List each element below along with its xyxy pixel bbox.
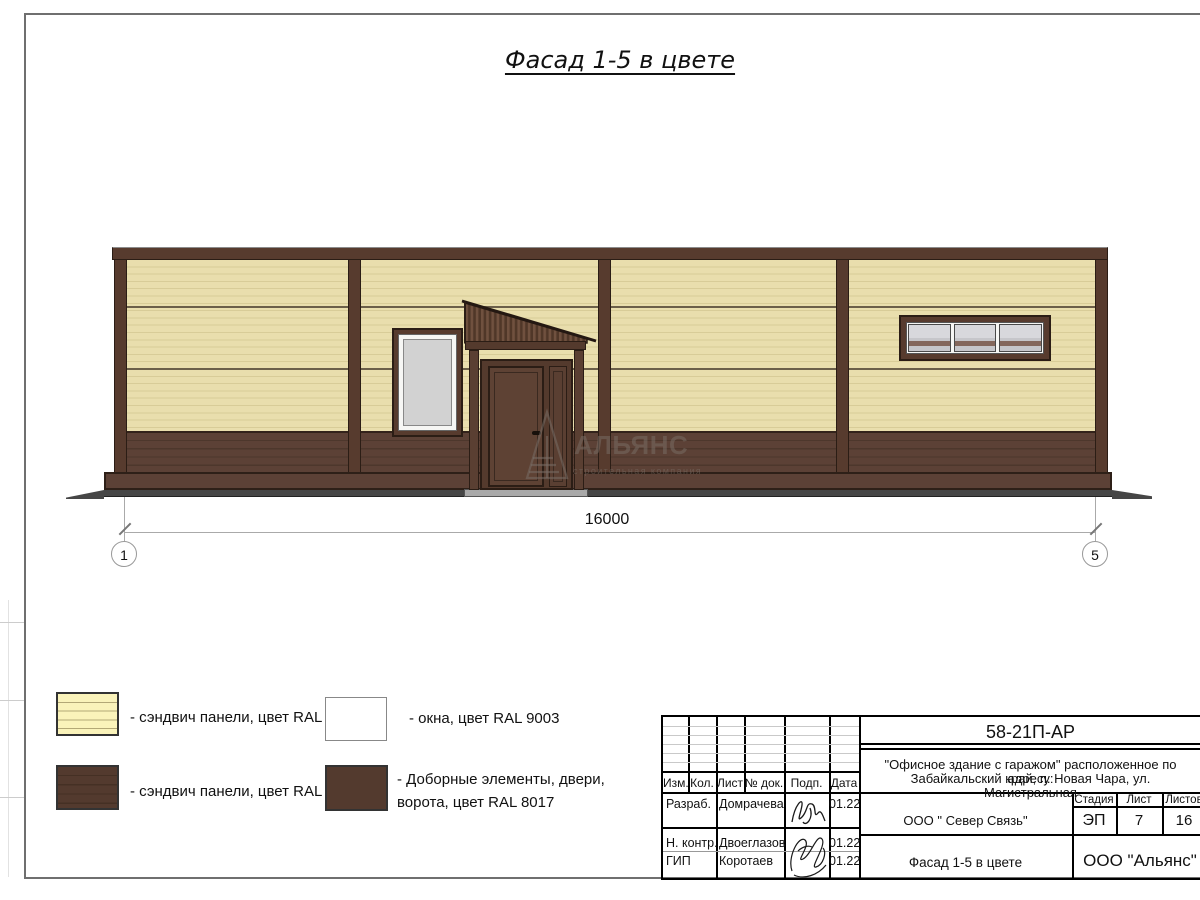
axis-marker-5: 5 [1082, 541, 1108, 567]
tb-name: Двоеглазов [719, 836, 785, 850]
dimension-line [124, 532, 1096, 533]
legend-label-ral8017-doors: - Доборные элементы, двери, ворота, цвет… [397, 768, 632, 814]
tb-sheets-value: 16 [1162, 810, 1200, 832]
tb-drawing-name: Фасад 1-5 в цвете [859, 848, 1072, 878]
tb-line [859, 834, 1200, 836]
dimension-tick [1090, 523, 1103, 536]
tb-col-doc: № док. [744, 775, 784, 791]
legend-label-ral9003-windows: - окна, цвет RAL 9003 [409, 710, 559, 728]
frame-top-line [24, 13, 1200, 15]
facade-roof-band [112, 247, 1108, 260]
tb-company: ООО "Альянс" [1078, 845, 1200, 877]
tb-line [663, 771, 859, 773]
window-single [392, 328, 463, 437]
panel-seam-line [127, 368, 1095, 370]
ground-wedge-right [1112, 490, 1152, 499]
panel-seam-line [127, 306, 1095, 308]
watermark-logo: АЛЬЯНС строительная компания [516, 406, 726, 484]
dimension-value: 16000 [557, 511, 657, 529]
tb-rev-line [663, 726, 859, 727]
sash-band [1000, 341, 1041, 346]
window-glass [403, 339, 452, 426]
axis-marker-1: 1 [111, 541, 137, 567]
tb-col-data: Дата [829, 775, 859, 791]
tb-line [716, 717, 718, 880]
tb-date: 01.22 [829, 797, 859, 811]
sash-band [909, 341, 950, 346]
canopy-beam [465, 341, 586, 350]
tb-project-line2: Забайкальский край, п. Новая Чара, ул. М… [863, 772, 1198, 786]
tb-line [859, 743, 1200, 745]
margin-divider [0, 797, 24, 798]
tb-rev-line [663, 744, 859, 745]
tb-date: 01.22 [829, 836, 859, 850]
tb-name: Коротаев [719, 854, 773, 868]
tb-col-list: Лист [716, 775, 744, 791]
tb-role: Н. контр. [666, 836, 718, 850]
canopy-post-left [469, 350, 479, 490]
legend-swatch-ral1014 [56, 692, 119, 736]
facade-pilaster [1095, 260, 1108, 472]
tb-date: 01.22 [829, 854, 859, 868]
page-title: Фасад 1-5 в цвете [400, 46, 840, 74]
drawing-sheet: Фасад 1-5 в цвете [0, 0, 1200, 900]
tb-line [859, 748, 1200, 750]
window-pane [908, 324, 951, 352]
sash-band [955, 341, 996, 346]
window-triple [899, 315, 1051, 361]
tb-doc-number: 58-21П-АР [859, 721, 1200, 743]
frame-left-line [24, 13, 26, 877]
tb-sheet-value: 7 [1116, 810, 1162, 832]
signature-scribble [784, 827, 830, 880]
tb-rev-line [663, 753, 859, 754]
tb-role: ГИП [666, 854, 691, 868]
legend-swatch-ral8017-panels [56, 765, 119, 810]
margin-divider [0, 700, 24, 701]
tb-col-izm: Изм. [663, 775, 688, 791]
tb-rev-line [663, 735, 859, 736]
tb-rev-line [663, 762, 859, 763]
tb-line [1072, 806, 1200, 808]
window-pane [999, 324, 1042, 352]
watermark-text: АЛЬЯНС [574, 430, 688, 461]
facade-pilaster [348, 260, 361, 472]
margin-divider [0, 622, 24, 623]
tb-sheet-label: Лист [1116, 794, 1162, 806]
extension-line [1095, 497, 1096, 541]
ground-wedge-left [66, 490, 104, 499]
ground-line [104, 490, 1112, 497]
tb-stage-label: Стадия [1072, 794, 1116, 806]
signature-scribble [786, 794, 828, 828]
legend-swatch-ral8017-doors [325, 765, 388, 811]
dimension-tick [119, 523, 132, 536]
window-pane [954, 324, 997, 352]
margin-edge-line [8, 600, 9, 877]
watermark-tagline: строительная компания [573, 466, 702, 476]
facade-pilaster [114, 260, 127, 472]
tb-project-line1: "Офисное здание с гаражом" расположенное… [863, 758, 1198, 772]
legend-swatch-ral9003-windows [325, 697, 387, 741]
facade-pilaster [836, 260, 849, 472]
tb-col-kol: Кол. [688, 775, 716, 791]
extension-line [124, 497, 125, 541]
tb-col-podp: Подп. [784, 775, 829, 791]
tb-name: Домрачева [719, 797, 784, 811]
entrance-step [464, 489, 588, 497]
tb-role: Разраб. [666, 797, 711, 811]
title-block: Изм. Кол. Лист № док. Подп. Дата Разраб.… [661, 715, 1200, 880]
tb-sheets-label: Листов [1162, 794, 1200, 806]
tb-org: ООО " Север Связь" [859, 807, 1072, 834]
window-panes [908, 324, 1042, 352]
tb-stage-value: ЭП [1072, 809, 1116, 833]
alliance-triangle-icon [516, 406, 572, 484]
